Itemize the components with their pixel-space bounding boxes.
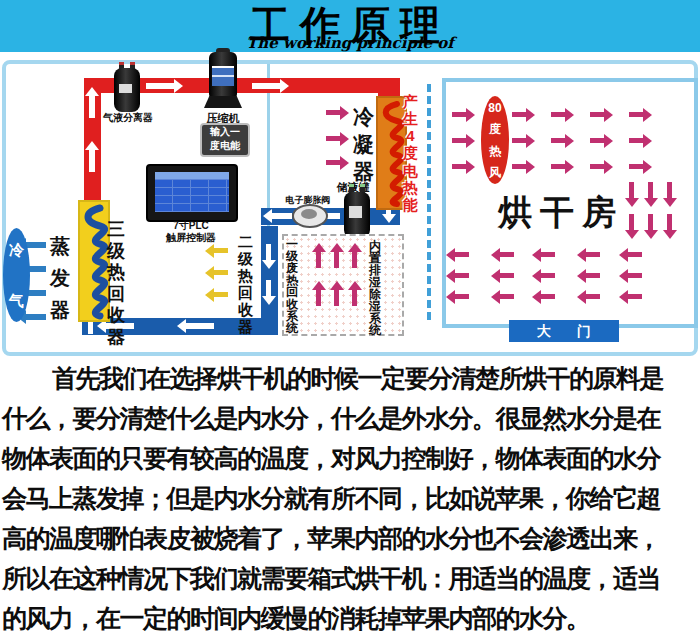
hot-air-down-arrow-icon bbox=[667, 214, 672, 230]
return-air-arrow-icon bbox=[541, 294, 555, 299]
evaporator-label: 蒸发器 bbox=[50, 236, 70, 320]
plc-label: 7寸PLC 触屏控制器 bbox=[146, 220, 236, 244]
page-subtitle: The working principle of bbox=[0, 34, 700, 52]
hot-air-arrow-icon bbox=[452, 164, 466, 169]
moisture-arrow-icon bbox=[352, 252, 357, 268]
return-air-arrow-icon bbox=[541, 252, 555, 257]
recovery2-arrow-icon bbox=[214, 270, 228, 275]
hot-air-down-arrow-icon bbox=[629, 182, 634, 198]
return-air-arrow-icon bbox=[628, 273, 642, 278]
return-air-arrow-icon bbox=[586, 294, 600, 299]
hot-air-down-arrow-icon bbox=[648, 214, 653, 230]
flow-down-arrow-icon bbox=[266, 280, 271, 296]
page: 工作原理 The working principle of bbox=[0, 0, 700, 638]
hot-air-arrow-icon bbox=[512, 164, 526, 169]
condenser-label: 冷凝器 bbox=[353, 106, 374, 182]
return-air-arrow-icon bbox=[541, 273, 555, 278]
hot-air-arrow-icon bbox=[551, 138, 565, 143]
title-banner: 工作原理 The working principle of bbox=[0, 0, 700, 52]
flow-left-arrow-icon bbox=[186, 323, 214, 329]
hot-air-arrow-icon bbox=[452, 138, 466, 143]
hot-air-arrow-icon bbox=[590, 138, 604, 143]
hot-air-arrow-icon bbox=[590, 164, 604, 169]
separator-sticker bbox=[119, 84, 132, 93]
dehumidify-system-label: 内置排湿除湿系统 bbox=[369, 240, 381, 332]
heat-recovery-2-label: 二级热回收器 bbox=[238, 234, 253, 334]
flow-right-arrow-icon bbox=[146, 83, 174, 89]
moisture-arrow-icon bbox=[316, 252, 321, 268]
return-air-arrow-icon bbox=[455, 294, 469, 299]
return-air-arrow-icon bbox=[500, 273, 514, 278]
flow-right-arrow-icon bbox=[252, 83, 280, 89]
recovery2-arrow-icon bbox=[214, 248, 228, 253]
return-air-arrow-icon bbox=[500, 252, 514, 257]
hot-air-arrow-icon bbox=[551, 164, 565, 169]
working-principle-diagram: 气液分离器 压缩机 输入一 度电能 7寸PLC 触屏控制器 三级热回收器 蒸发器 bbox=[0, 52, 700, 358]
hot-air-arrow-icon bbox=[629, 164, 643, 169]
moisture-arrow-icon bbox=[316, 290, 321, 306]
hot-wind-oval: 80度热风 bbox=[481, 96, 509, 184]
return-air-arrow-icon bbox=[586, 252, 600, 257]
paragraph-line: 什么，要分清楚什么是内水分，什么是外水分。很显然水分是在 bbox=[0, 398, 700, 438]
paragraph-line: 首先我们在选择烘干机的时候一定要分清楚所烘干的原料是 bbox=[0, 358, 700, 398]
return-air-arrow-icon bbox=[586, 273, 600, 278]
description-paragraph: 首先我们在选择烘干机的时候一定要分清楚所烘干的原料是 什么，要分清楚什么是内水分… bbox=[0, 358, 700, 638]
return-air-arrow-icon bbox=[628, 294, 642, 299]
heat-energy-label: 产生4度电热能 bbox=[403, 94, 418, 212]
drying-room-label: 烘干房 bbox=[498, 190, 624, 236]
plc-screen bbox=[155, 172, 229, 212]
recovery2-arrow-icon bbox=[214, 292, 228, 297]
paragraph-line: 会马上蒸发掉；但是内水分就有所不同，比如说苹果，你给它超 bbox=[0, 478, 700, 518]
hot-air-arrow-icon bbox=[452, 112, 466, 117]
expansion-valve-core bbox=[301, 209, 317, 219]
cold-air-arrow-icon bbox=[26, 242, 46, 248]
heat-recovery-3-label: 三级热回收器 bbox=[107, 220, 125, 346]
hot-air-down-arrow-icon bbox=[648, 182, 653, 198]
door-label: 大门 bbox=[509, 320, 619, 342]
compressor-base bbox=[204, 96, 242, 108]
paragraph-line: 高的温度哪怕表皮被烧着了，苹果内部的水分也不会渗透出来， bbox=[0, 518, 700, 558]
return-air-arrow-icon bbox=[455, 252, 469, 257]
hot-air-arrow-icon bbox=[512, 138, 526, 143]
paragraph-line: 的风力，在一定的时间内缓慢的消耗掉苹果内部的水分。 bbox=[0, 598, 700, 638]
paragraph-line: 所以在这种情况下我们就需要箱式烘干机：用适当的温度，适当 bbox=[0, 558, 700, 598]
input-energy-line2: 度电能 bbox=[202, 139, 248, 153]
return-air-arrow-icon bbox=[455, 273, 469, 278]
flow-up-arrow-icon bbox=[89, 96, 95, 118]
condenser-arrow-icon bbox=[326, 136, 340, 141]
cold-air-oval: 冷气 bbox=[3, 228, 30, 322]
hot-air-arrow-icon bbox=[512, 112, 526, 117]
hot-air-arrow-icon bbox=[629, 138, 643, 143]
hot-air-dashed-wall bbox=[427, 84, 431, 320]
flow-down-arrow-icon bbox=[266, 244, 271, 260]
heat-recovery-3-coil bbox=[78, 200, 110, 322]
gas-liquid-separator-label: 气液分离器 bbox=[96, 111, 160, 125]
coil-icon bbox=[80, 202, 108, 320]
compressor-sticker bbox=[212, 66, 234, 86]
flow-up-arrow-icon bbox=[89, 150, 95, 172]
hot-air-down-arrow-icon bbox=[629, 214, 634, 230]
return-air-arrow-icon bbox=[500, 294, 514, 299]
hot-air-arrow-icon bbox=[590, 112, 604, 117]
flow-left-arrow-icon bbox=[272, 213, 292, 219]
return-air-arrow-icon bbox=[628, 252, 642, 257]
plc-controller bbox=[146, 164, 238, 222]
cold-air-arrow-icon bbox=[26, 314, 46, 320]
input-energy-line1: 输入一 bbox=[202, 125, 248, 139]
hot-air-arrow-icon bbox=[629, 112, 643, 117]
waste-heat-system-label: 一级废热回收系统 bbox=[286, 238, 298, 330]
moisture-arrow-icon bbox=[334, 252, 339, 268]
coil-icon bbox=[378, 98, 405, 208]
hot-air-arrow-icon bbox=[551, 112, 565, 117]
tank-sticker bbox=[349, 206, 362, 218]
condenser-arrow-icon bbox=[326, 160, 340, 165]
moisture-arrow-icon bbox=[352, 290, 357, 306]
input-energy-badge: 输入一 度电能 bbox=[200, 123, 250, 157]
hot-air-down-arrow-icon bbox=[667, 182, 672, 198]
condenser-arrow-icon bbox=[326, 110, 340, 115]
paragraph-line: 物体表面的只要有较高的温度，对风力控制好，物体表面的水分 bbox=[0, 438, 700, 478]
moisture-arrow-icon bbox=[334, 290, 339, 306]
